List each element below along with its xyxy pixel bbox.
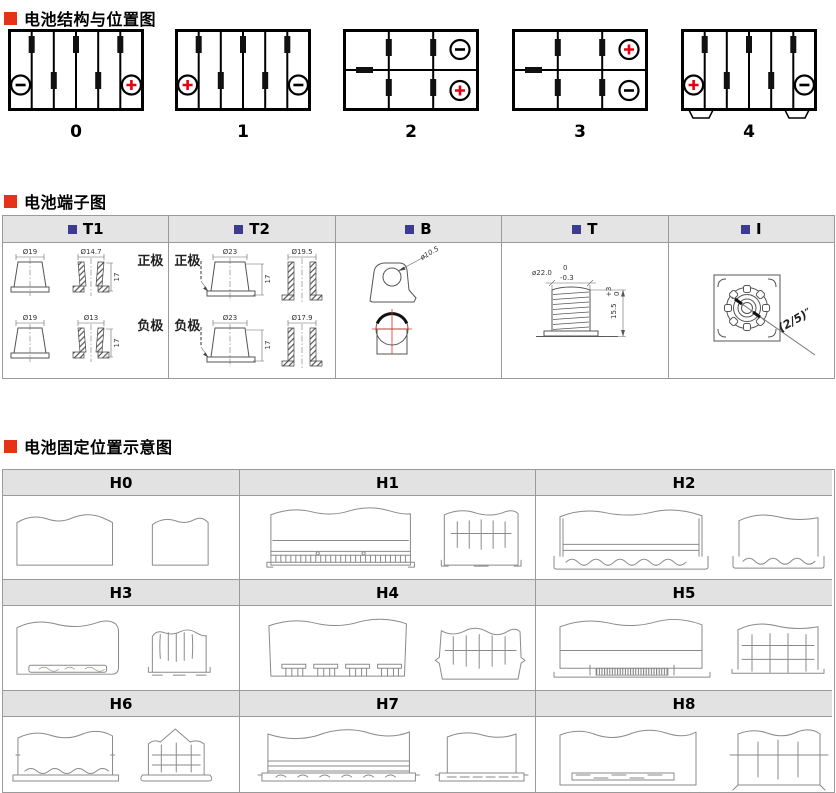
dimension-label: 17 bbox=[264, 341, 272, 350]
section-title-text: 电池结构与位置图 bbox=[24, 6, 156, 30]
battery-layout-1-diagram bbox=[175, 29, 311, 111]
holddown-h2-drawing bbox=[536, 496, 832, 579]
dimension-label: ø22.0 bbox=[532, 269, 552, 277]
holddown-h0-header: H0 bbox=[3, 470, 240, 496]
holddown-h5-drawing bbox=[536, 606, 832, 690]
thread-size-label: (2/5)″ bbox=[775, 305, 814, 335]
bottom-flange-tabs bbox=[689, 110, 809, 118]
holddown-h8-header: H8 bbox=[536, 691, 832, 717]
dimension-label: Ø13 bbox=[84, 314, 98, 322]
holddown-h7-drawing bbox=[240, 717, 535, 792]
holddown-h3-cell bbox=[3, 606, 240, 691]
holddown-label: H1 bbox=[376, 474, 399, 492]
dimension-label: Ø17.9 bbox=[292, 314, 313, 322]
negative-terminal-icon bbox=[11, 76, 30, 95]
terminal-b-drawing: ø10.5 bbox=[336, 243, 502, 378]
holddown-label: H6 bbox=[110, 695, 133, 713]
negative-terminal-icon bbox=[451, 40, 470, 59]
terminal-column-i-header: I bbox=[669, 216, 834, 243]
terminal-i-drawing: (2/5)″ bbox=[669, 243, 835, 378]
holddown-h8-drawing bbox=[536, 717, 832, 792]
positive-terminal-icon bbox=[684, 76, 703, 95]
battery-layout-3-diagram bbox=[512, 29, 648, 111]
blue-bullet-icon bbox=[234, 225, 243, 234]
positive-terminal-icon bbox=[178, 76, 197, 95]
battery-layout-1 bbox=[175, 29, 311, 115]
terminal-column-t-header: T bbox=[502, 216, 667, 243]
holddown-h6-cell bbox=[3, 717, 240, 792]
dimension-label: +3 bbox=[605, 287, 613, 297]
red-bullet-icon bbox=[4, 195, 17, 208]
terminal-column-t2-body: Ø23 17 Ø19.5 Ø23 bbox=[169, 243, 334, 378]
positive-pole-label: 正极 bbox=[137, 250, 163, 269]
blue-bullet-icon bbox=[572, 225, 581, 234]
dimension-label: Ø19 bbox=[23, 314, 37, 322]
battery-layout-label: 4 bbox=[681, 122, 817, 142]
blue-bullet-icon bbox=[68, 225, 77, 234]
terminal-column-b: B ø10.5 bbox=[335, 216, 501, 378]
dimension-label: Ø23 bbox=[223, 314, 237, 322]
holddown-h4-header: H4 bbox=[240, 580, 536, 606]
battery-layout-label: 2 bbox=[343, 122, 479, 142]
holddown-grid: H0 H1 H2 H3 bbox=[2, 469, 835, 793]
holddown-h2-cell bbox=[536, 496, 832, 580]
holddown-label: H2 bbox=[673, 474, 696, 492]
terminal-column-t: T ø22.0 0 -0.3 15.5 +3 0 bbox=[501, 216, 667, 378]
holddown-h5-cell bbox=[536, 606, 832, 691]
holddown-h3-header: H3 bbox=[3, 580, 240, 606]
holddown-h7-cell bbox=[240, 717, 536, 792]
terminal-column-t1-header: T1 bbox=[3, 216, 168, 243]
section-terminal-title: 电池端子图 bbox=[4, 189, 107, 213]
holddown-label: H4 bbox=[376, 584, 399, 602]
battery-layout-label: 1 bbox=[175, 122, 311, 142]
positive-terminal-icon bbox=[451, 81, 470, 100]
positive-terminal-icon bbox=[122, 76, 141, 95]
negative-terminal-icon bbox=[620, 81, 639, 100]
holddown-h4-cell bbox=[240, 606, 536, 691]
terminal-column-b-header: B bbox=[336, 216, 501, 243]
holddown-h5-header: H5 bbox=[536, 580, 832, 606]
holddown-label: H0 bbox=[110, 474, 133, 492]
holddown-h6-drawing bbox=[3, 717, 239, 792]
dimension-label: -0.3 bbox=[560, 274, 574, 282]
battery-layout-label: 3 bbox=[512, 122, 648, 142]
holddown-h1-header: H1 bbox=[240, 470, 536, 496]
holddown-h0-cell bbox=[3, 496, 240, 580]
terminal-type-label: B bbox=[420, 220, 431, 238]
terminal-column-t2-header: T2 bbox=[169, 216, 334, 243]
red-bullet-icon bbox=[4, 12, 17, 25]
terminal-column-t2: T2 Ø23 17 Ø19.5 bbox=[168, 216, 334, 378]
holddown-h1-cell bbox=[240, 496, 536, 580]
terminal-column-i-body: (2/5)″ bbox=[669, 243, 834, 378]
battery-layout-4 bbox=[681, 29, 817, 126]
dimension-label: Ø23 bbox=[223, 248, 237, 256]
dimension-label: ø10.5 bbox=[418, 245, 441, 263]
dimension-label: 0 bbox=[613, 292, 621, 296]
holddown-h0-drawing bbox=[3, 496, 239, 579]
terminal-type-label: T2 bbox=[249, 220, 270, 238]
battery-layout-2-diagram bbox=[343, 29, 479, 111]
section-title-text: 电池端子图 bbox=[24, 189, 107, 213]
terminal-column-b-body: ø10.5 bbox=[336, 243, 501, 378]
negative-terminal-icon bbox=[289, 76, 308, 95]
holddown-h6-header: H6 bbox=[3, 691, 240, 717]
negative-pole-label: 负极 bbox=[137, 315, 163, 334]
terminal-type-label: T1 bbox=[83, 220, 104, 238]
terminal-t-drawing: ø22.0 0 -0.3 15.5 +3 0 bbox=[502, 243, 668, 378]
section-holddown-title: 电池固定位置示意图 bbox=[4, 434, 173, 458]
battery-layout-4-diagram bbox=[681, 29, 817, 122]
dimension-label: 17 bbox=[113, 273, 121, 282]
negative-terminal-icon bbox=[795, 76, 814, 95]
red-bullet-icon bbox=[4, 440, 17, 453]
dimension-label: Ø19 bbox=[23, 248, 37, 256]
terminal-type-label: T bbox=[587, 220, 597, 238]
holddown-h1-drawing bbox=[240, 496, 535, 579]
terminal-column-t1-body: Ø19 Ø14.7 17 Ø19 Ø13 bbox=[3, 243, 168, 378]
holddown-h4-drawing bbox=[240, 606, 535, 690]
positive-pole-label: 正极 bbox=[174, 250, 200, 269]
terminal-column-t1: T1 Ø19 Ø14.7 1 bbox=[3, 216, 168, 378]
battery-layout-0 bbox=[8, 29, 144, 115]
holddown-label: H3 bbox=[110, 584, 133, 602]
holddown-label: H5 bbox=[673, 584, 696, 602]
positive-terminal-icon bbox=[620, 40, 639, 59]
holddown-label: H8 bbox=[673, 695, 696, 713]
terminal-table: T1 Ø19 Ø14.7 1 bbox=[2, 215, 835, 379]
battery-layout-2 bbox=[343, 29, 479, 115]
holddown-label: H7 bbox=[376, 695, 399, 713]
dimension-label: 17 bbox=[264, 275, 272, 284]
terminal-type-label: I bbox=[756, 220, 762, 238]
dimension-label: Ø19.5 bbox=[292, 248, 313, 256]
battery-layout-0-diagram bbox=[8, 29, 144, 111]
negative-pole-label: 负极 bbox=[174, 315, 200, 334]
holddown-h8-cell bbox=[536, 717, 832, 792]
holddown-h7-header: H7 bbox=[240, 691, 536, 717]
holddown-h3-drawing bbox=[3, 606, 239, 690]
battery-layout-label: 0 bbox=[8, 122, 144, 142]
terminal-column-t-body: ø22.0 0 -0.3 15.5 +3 0 bbox=[502, 243, 667, 378]
terminal-column-i: I bbox=[668, 216, 834, 378]
dimension-label: Ø14.7 bbox=[80, 248, 101, 256]
blue-bullet-icon bbox=[741, 225, 750, 234]
dimension-label: 0 bbox=[563, 264, 567, 272]
section-title-text: 电池固定位置示意图 bbox=[24, 434, 173, 458]
battery-layout-3 bbox=[512, 29, 648, 115]
dimension-label: 15.5 bbox=[610, 303, 618, 319]
dimension-label: 17 bbox=[113, 339, 121, 348]
section-battery-structure-title: 电池结构与位置图 bbox=[4, 6, 156, 30]
blue-bullet-icon bbox=[405, 225, 414, 234]
holddown-h2-header: H2 bbox=[536, 470, 832, 496]
